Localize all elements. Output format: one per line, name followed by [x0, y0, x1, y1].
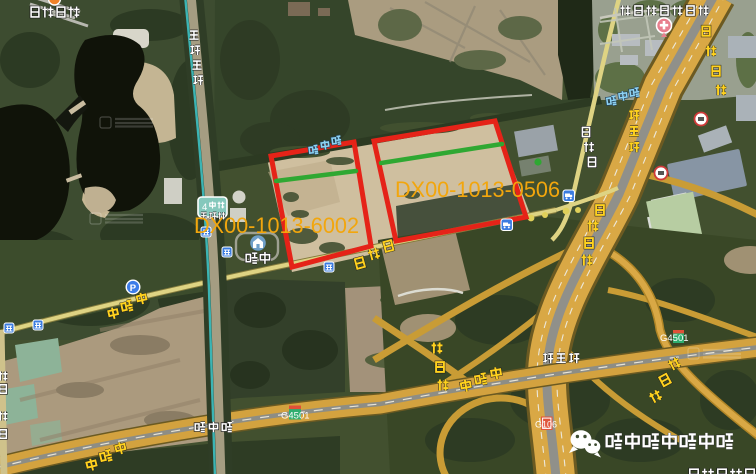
- svg-text:G4501: G4501: [281, 411, 310, 422]
- svg-text:P: P: [130, 283, 137, 294]
- svg-text:DX00-1013-0506: DX00-1013-0506: [395, 177, 560, 202]
- svg-text:DX00-1013-6002: DX00-1013-6002: [194, 213, 359, 238]
- svg-text:G106: G106: [535, 420, 557, 430]
- svg-text:G4501: G4501: [660, 333, 689, 344]
- svg-text:4: 4: [202, 202, 207, 213]
